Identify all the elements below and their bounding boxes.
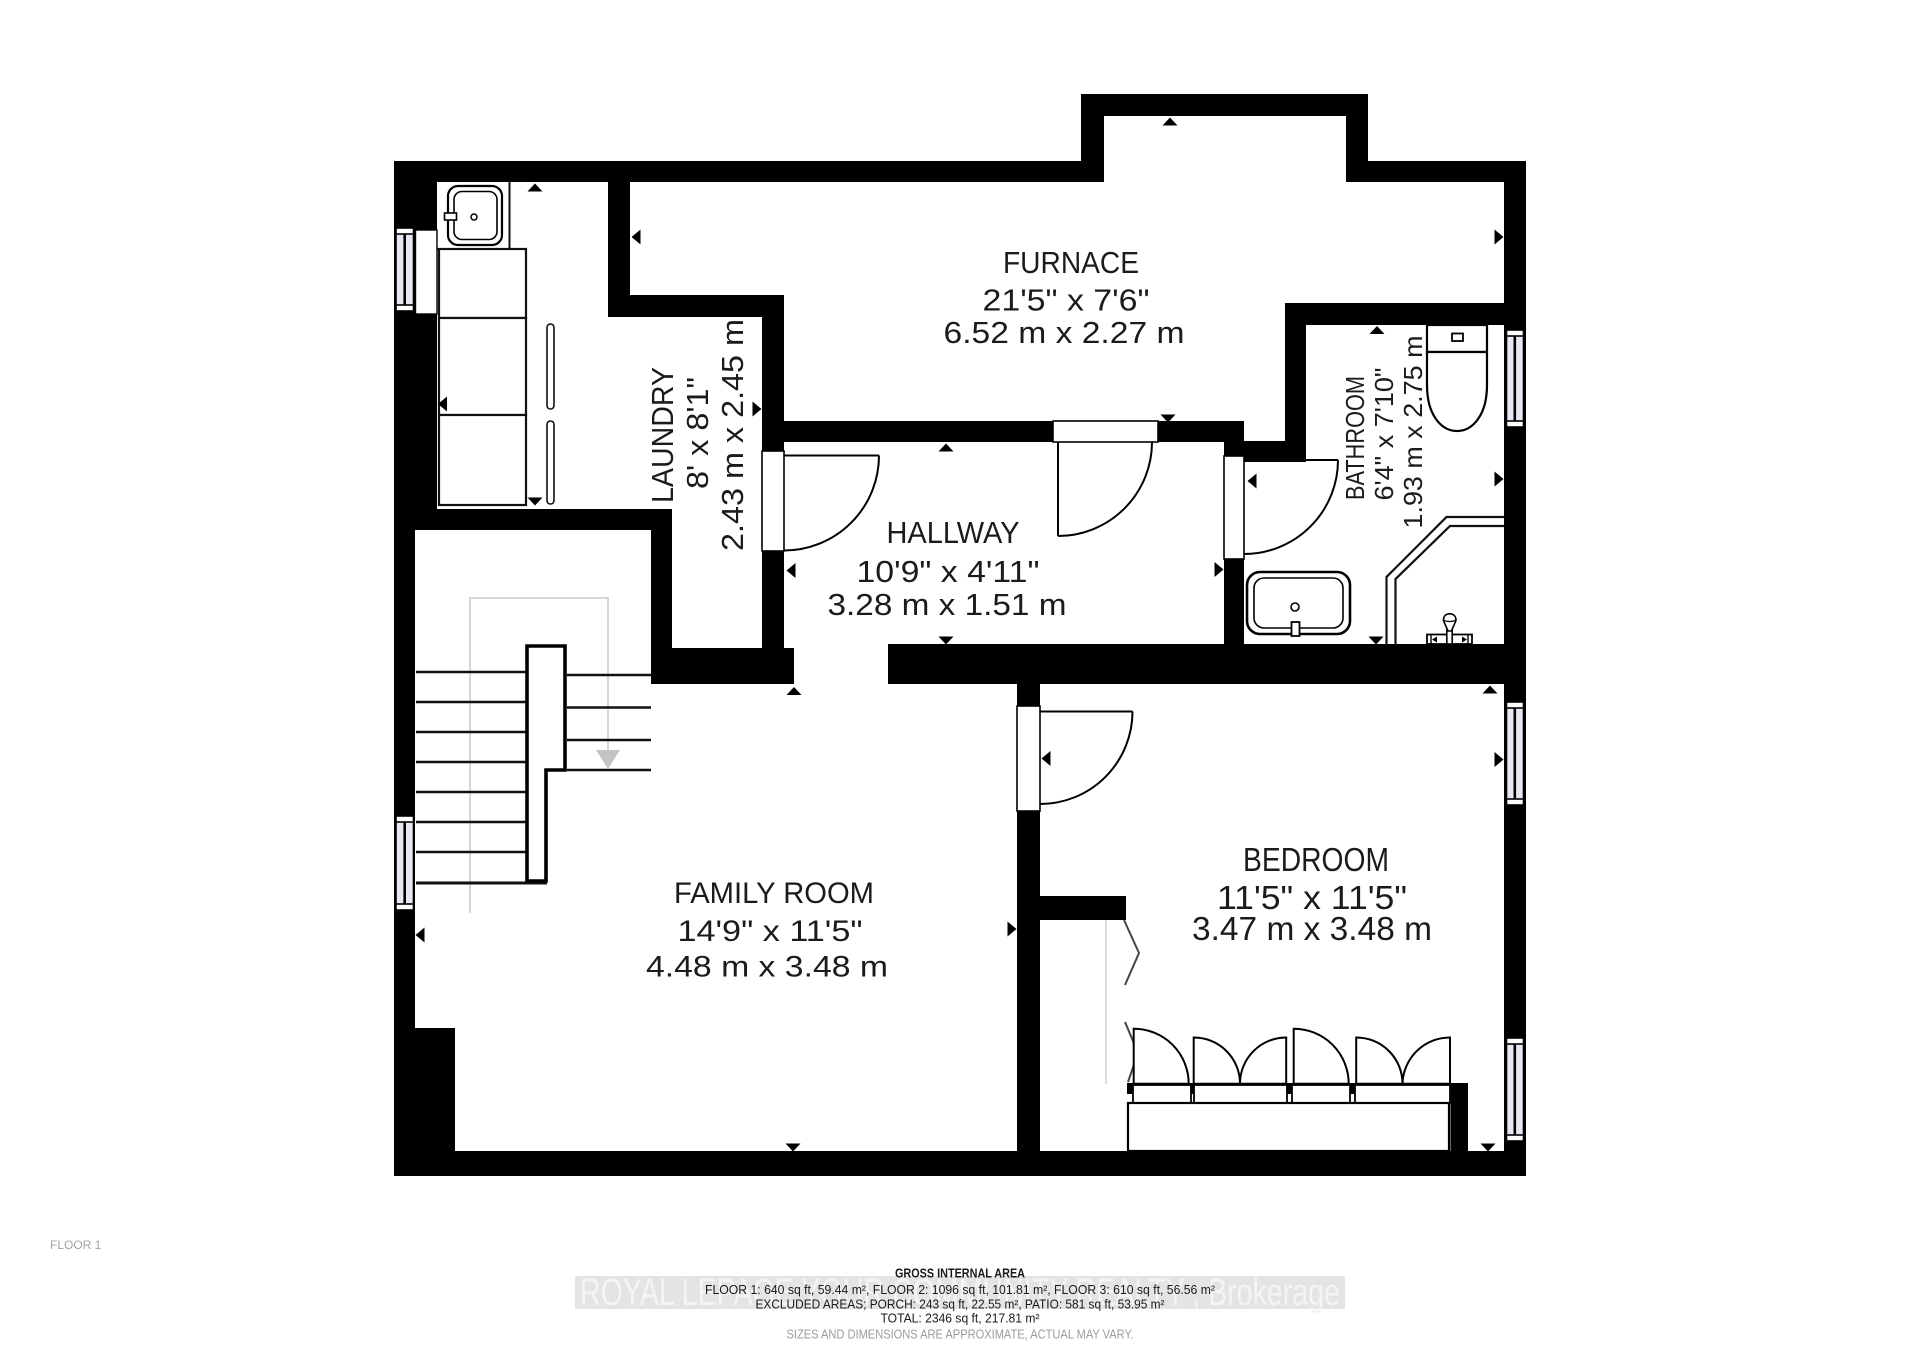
svg-text:FLOOR 1: 640 sq ft, 59.44 m²,: FLOOR 1: 640 sq ft, 59.44 m², FLOOR 2: 1… — [705, 1282, 1216, 1297]
svg-text:3.47 m x 3.48 m: 3.47 m x 3.48 m — [1192, 910, 1432, 947]
svg-text:4.48 m x 3.48 m: 4.48 m x 3.48 m — [646, 951, 888, 984]
svg-text:SIZES AND DIMENSIONS ARE APPRO: SIZES AND DIMENSIONS ARE APPROXIMATE, AC… — [787, 1327, 1134, 1342]
svg-text:8' x 8'1": 8' x 8'1" — [680, 377, 715, 489]
svg-text:GROSS INTERNAL AREA: GROSS INTERNAL AREA — [895, 1266, 1026, 1281]
svg-text:EXCLUDED AREAS; PORCH: 243 sq: EXCLUDED AREAS; PORCH: 243 sq ft, 22.55 … — [756, 1297, 1166, 1312]
svg-text:TOTAL: 2346 sq ft, 217.81 m²: TOTAL: 2346 sq ft, 217.81 m² — [881, 1311, 1041, 1326]
svg-text:6.52 m x 2.27 m: 6.52 m x 2.27 m — [944, 315, 1185, 350]
svg-text:FLOOR 1: FLOOR 1 — [50, 1238, 102, 1252]
svg-text:FAMILY ROOM: FAMILY ROOM — [674, 877, 874, 910]
svg-text:10'9" x 4'11": 10'9" x 4'11" — [857, 554, 1040, 589]
svg-text:BATHROOM: BATHROOM — [1340, 376, 1370, 500]
svg-text:LAUNDRY: LAUNDRY — [645, 367, 680, 503]
svg-text:14'9" x 11'5": 14'9" x 11'5" — [678, 915, 863, 948]
svg-text:FURNACE: FURNACE — [1003, 245, 1139, 280]
svg-text:21'5" x 7'6": 21'5" x 7'6" — [983, 283, 1150, 318]
svg-text:HALLWAY: HALLWAY — [887, 515, 1020, 550]
svg-text:3.28 m x 1.51 m: 3.28 m x 1.51 m — [828, 587, 1067, 622]
svg-text:1.93 m x 2.75 m: 1.93 m x 2.75 m — [1398, 336, 1428, 529]
svg-text:2.43 m x 2.45 m: 2.43 m x 2.45 m — [715, 319, 750, 551]
svg-text:6'4" x 7'10": 6'4" x 7'10" — [1369, 368, 1399, 501]
svg-text:BEDROOM: BEDROOM — [1243, 841, 1389, 878]
